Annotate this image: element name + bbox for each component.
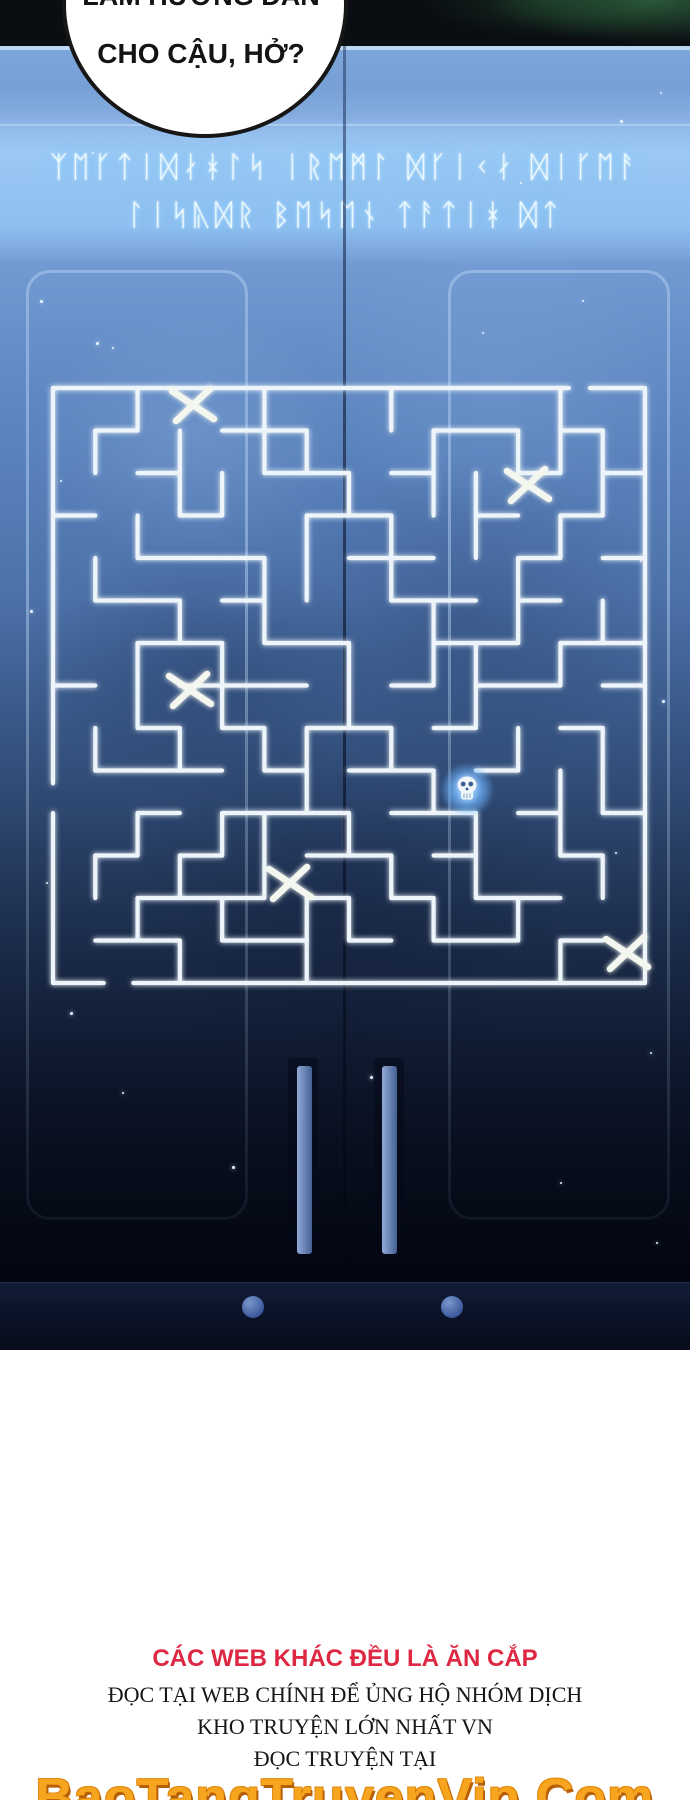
x-mark-icon <box>169 674 211 706</box>
maze-overlay <box>0 0 690 1350</box>
site-brand: BaoTangTruyenVip.Com <box>0 1768 690 1800</box>
x-mark-icon <box>606 937 648 969</box>
door-handle-right <box>382 1066 397 1254</box>
maze-walls <box>53 388 645 983</box>
speech-bubble-line-1: LÀM HƯỚNG DẪN <box>62 0 340 10</box>
footer-note-2: KHO TRUYỆN LỚN NHẤT VN <box>0 1714 690 1740</box>
skull-icon <box>440 763 494 817</box>
footer-note-1: ĐỌC TẠI WEB CHÍNH ĐỂ ỦNG HỘ NHÓM DỊCH <box>0 1682 690 1708</box>
door-handle-left <box>297 1066 312 1254</box>
x-mark-icon <box>269 867 311 899</box>
speech-bubble-line-2: CHO CẬU, HỞ? <box>62 40 340 68</box>
piracy-warning: CÁC WEB KHÁC ĐỀU LÀ ĂN CẮP <box>0 1645 690 1673</box>
door-knob-right <box>441 1296 463 1318</box>
comic-page: ᛉᛖᚴᛏᛁᛞᛅᚼᛚᛋ ᛁᚱᛖᛗᛚ ᛞᚴᛁᚲᛅ ᛞᛁᚴᛖᚨ ᛚᛁᛋᚣᛞᚱ ᛒᛖᛋᛖ… <box>0 0 690 1800</box>
x-mark-icon <box>172 389 214 421</box>
door-knob-left <box>242 1296 264 1318</box>
floor-shadow <box>0 1282 690 1351</box>
maze-marks <box>169 389 648 969</box>
